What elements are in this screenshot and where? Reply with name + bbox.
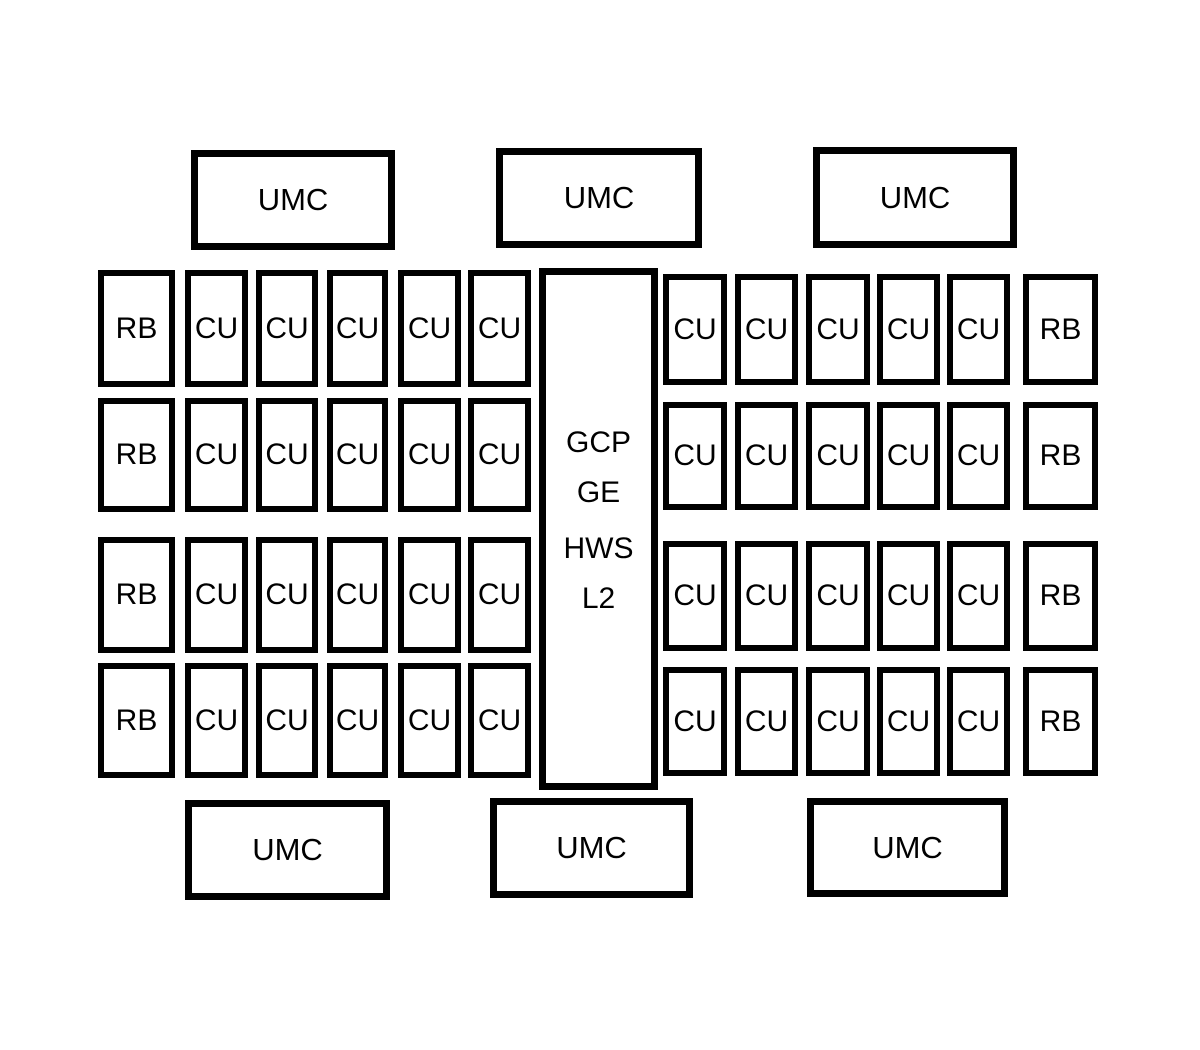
cu-block: CU	[947, 541, 1010, 651]
cu-block: CU	[947, 667, 1010, 776]
umc-block: UMC	[496, 148, 702, 248]
cu-block: CU	[398, 398, 461, 512]
umc-block: UMC	[191, 150, 395, 250]
umc-block: UMC	[813, 147, 1017, 248]
cu-block: CU	[327, 398, 388, 512]
cu-block: CU	[327, 663, 388, 778]
cu-block: CU	[468, 270, 531, 387]
cu-block: CU	[877, 274, 940, 385]
umc-block: UMC	[490, 798, 693, 898]
cu-block: CU	[185, 537, 248, 653]
cu-block: CU	[735, 274, 798, 385]
umc-block: UMC	[807, 798, 1008, 897]
cu-block: CU	[947, 274, 1010, 385]
cu-block: CU	[735, 667, 798, 776]
cu-block: CU	[398, 270, 461, 387]
cu-block: CU	[468, 398, 531, 512]
cu-block: CU	[398, 663, 461, 778]
rb-block: RB	[1023, 541, 1098, 651]
shader-row: RB CU CU CU CU CU CU CU CU CU CU RB	[0, 270, 1200, 387]
shader-row: RB CU CU CU CU CU CU CU CU CU CU RB	[0, 537, 1200, 653]
cu-block: CU	[663, 541, 727, 651]
gpu-die-block-diagram: UMC UMC UMC GCP GE HWS L2 RB CU CU CU CU…	[0, 0, 1200, 1050]
cu-block: CU	[806, 541, 870, 651]
rb-block: RB	[98, 398, 175, 512]
cu-block: CU	[468, 537, 531, 653]
cu-block: CU	[468, 663, 531, 778]
cu-block: CU	[256, 537, 318, 653]
cu-block: CU	[185, 398, 248, 512]
cu-block: CU	[806, 274, 870, 385]
cu-block: CU	[256, 398, 318, 512]
rb-block: RB	[98, 663, 175, 778]
rb-block: RB	[1023, 667, 1098, 776]
cu-block: CU	[256, 663, 318, 778]
cu-block: CU	[185, 663, 248, 778]
cu-block: CU	[327, 537, 388, 653]
cu-block: CU	[947, 402, 1010, 510]
cu-block: CU	[256, 270, 318, 387]
rb-block: RB	[98, 537, 175, 653]
cu-block: CU	[185, 270, 248, 387]
umc-block: UMC	[185, 800, 390, 900]
cu-block: CU	[327, 270, 388, 387]
shader-row: RB CU CU CU CU CU CU CU CU CU CU RB	[0, 398, 1200, 512]
cu-block: CU	[877, 667, 940, 776]
rb-block: RB	[1023, 402, 1098, 510]
cu-block: CU	[877, 541, 940, 651]
cu-block: CU	[663, 274, 727, 385]
cu-block: CU	[735, 541, 798, 651]
cu-block: CU	[806, 402, 870, 510]
rb-block: RB	[1023, 274, 1098, 385]
cu-block: CU	[663, 667, 727, 776]
cu-block: CU	[735, 402, 798, 510]
shader-row: RB CU CU CU CU CU CU CU CU CU CU RB	[0, 663, 1200, 778]
cu-block: CU	[877, 402, 940, 510]
cu-block: CU	[663, 402, 727, 510]
rb-block: RB	[98, 270, 175, 387]
cu-block: CU	[398, 537, 461, 653]
cu-block: CU	[806, 667, 870, 776]
